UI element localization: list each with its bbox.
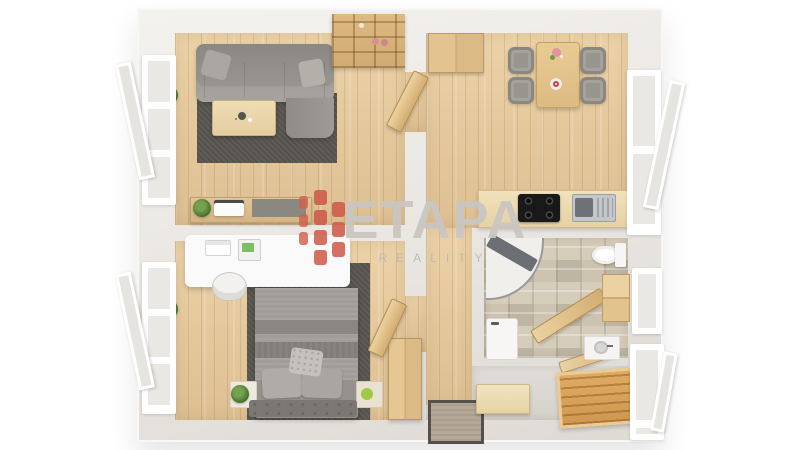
shelf-decor: [372, 38, 379, 45]
bath-wall-cabinet: [602, 274, 630, 322]
accent-pillow: [288, 347, 323, 377]
shoe-bench: [556, 367, 638, 428]
toilet-tank: [615, 243, 626, 267]
vanity-sink: [584, 336, 620, 360]
cooktop: [518, 194, 560, 222]
laptop: [238, 239, 261, 261]
desk-printer: [205, 240, 231, 256]
floorplan-canvas: ETAPA REALITY: [0, 0, 800, 450]
wall-shelf: [332, 14, 405, 68]
nightstand-plant: [231, 385, 249, 403]
dining-chair-2: [508, 77, 534, 104]
tv: [214, 200, 244, 216]
table-flowers: [552, 48, 561, 57]
hall-box: [476, 384, 530, 414]
corridor-floor: [426, 228, 472, 405]
sofa-chaise: [286, 98, 334, 138]
dining-chair-3: [580, 47, 606, 74]
window-left-bedroom: [142, 262, 176, 414]
window-left-living: [142, 55, 176, 205]
kitchen-sink: [572, 194, 616, 222]
bed-bench: [249, 400, 357, 417]
living-plant: [193, 199, 211, 217]
office-chair: [212, 272, 247, 301]
dining-chair-1: [508, 47, 534, 74]
nightstand-decor: [361, 388, 373, 400]
window-right-bath: [632, 268, 662, 334]
sideboard-runner: [252, 199, 306, 217]
kitchen-wardrobe: [428, 33, 484, 73]
dining-chair-4: [580, 77, 606, 104]
washing-machine: [486, 318, 518, 360]
sofa-pillow-corner: [298, 58, 326, 88]
table-decor: [238, 112, 246, 120]
duvet-fold-1: [255, 320, 358, 334]
table-plate: [550, 78, 562, 90]
bedroom-wardrobe: [388, 338, 422, 420]
